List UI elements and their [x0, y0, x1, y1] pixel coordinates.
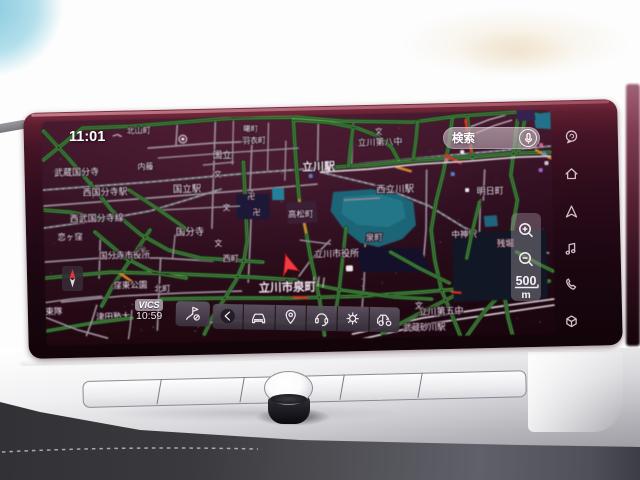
svg-text:500: 500	[516, 274, 537, 288]
svg-text:m: m	[521, 289, 530, 301]
